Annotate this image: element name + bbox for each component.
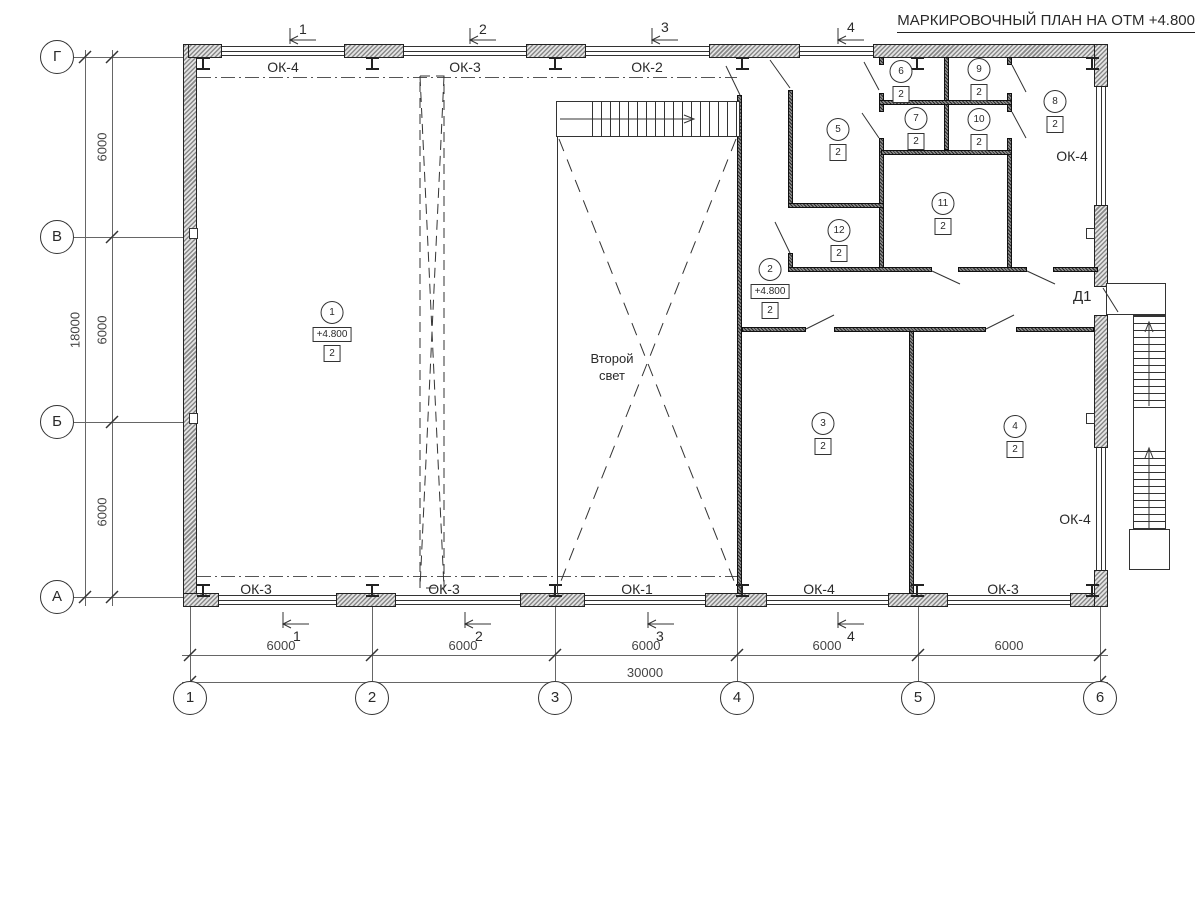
section-mark-label: 2: [475, 628, 483, 644]
dim-label-total: 30000: [627, 665, 663, 680]
axis-bubble-col: 6: [1083, 681, 1117, 715]
dimension-ticks: [79, 51, 1106, 688]
room-marker-6: 6 2: [890, 60, 913, 103]
room-number: 8: [1052, 96, 1058, 107]
room-number-bubble: 12: [828, 219, 851, 242]
axis-label: 5: [914, 689, 922, 706]
room-number: 3: [820, 418, 826, 429]
room-type-badge: 2: [815, 438, 832, 455]
room-type: 2: [940, 221, 946, 232]
room-type-badge: 2: [935, 218, 952, 235]
room-elevation: +4.800: [751, 284, 790, 299]
room-number: 2: [767, 264, 773, 275]
room-marker-9: 9 2: [968, 58, 991, 101]
window-label: ОК-3: [987, 581, 1019, 597]
room-number: 4: [1012, 421, 1018, 432]
room-marker-12: 12 2: [828, 219, 851, 262]
axis-label: Б: [52, 413, 62, 430]
axis-bubble-col: 5: [901, 681, 935, 715]
section-mark-label: 3: [656, 628, 664, 644]
room-marker-2: 2 +4.800 2: [751, 258, 790, 319]
room-type-badge: 2: [971, 134, 988, 151]
room-type-badge: 2: [893, 86, 910, 103]
dim-label: 6000: [813, 638, 842, 653]
window-label: ОК-2: [631, 59, 663, 75]
room-number-bubble: 1: [321, 301, 344, 324]
room-type: 2: [329, 348, 335, 359]
axis-bubble-col: 2: [355, 681, 389, 715]
room-number: 12: [833, 225, 844, 236]
room-type-badge: 2: [830, 144, 847, 161]
section-mark-label: 1: [293, 628, 301, 644]
axis-label: 1: [186, 689, 194, 706]
room-number: 9: [976, 64, 982, 75]
room-number-bubble: 11: [932, 192, 955, 215]
dim-label-total: 18000: [68, 312, 83, 348]
axis-bubble-row: Б: [40, 405, 74, 439]
room-number-bubble: 7: [905, 107, 928, 130]
axis-label: Г: [53, 48, 61, 65]
dim-label: 6000: [95, 498, 110, 527]
room-number: 1: [329, 307, 335, 318]
section-mark-label: 2: [479, 21, 487, 37]
section-mark-label: 4: [847, 19, 855, 35]
axis-label: 6: [1096, 689, 1104, 706]
room-type: 2: [836, 248, 842, 259]
axis-bubble-row: Г: [40, 40, 74, 74]
void-cross: [559, 139, 736, 586]
window-label: ОК-4: [803, 581, 835, 597]
section-mark-arrows: [283, 28, 864, 628]
dim-label: 6000: [95, 133, 110, 162]
room-type-badge: 2: [908, 133, 925, 150]
room-marker-1: 1 +4.800 2: [313, 301, 352, 362]
room-type: 2: [913, 136, 919, 147]
window-label: ОК-1: [621, 581, 653, 597]
room-number: 7: [913, 113, 919, 124]
room-marker-8: 8 2: [1044, 90, 1067, 133]
room-elevation: +4.800: [313, 327, 352, 342]
dim-label: 6000: [267, 638, 296, 653]
room-type: 2: [1052, 119, 1058, 130]
axis-label: 4: [733, 689, 741, 706]
axis-bubble-col: 4: [720, 681, 754, 715]
axis-bubble-row: А: [40, 580, 74, 614]
room-number: 10: [973, 114, 984, 125]
room-type-badge: 2: [1007, 441, 1024, 458]
axis-label: 2: [368, 689, 376, 706]
room-number: 11: [938, 198, 948, 209]
room-marker-7: 7 2: [905, 107, 928, 150]
room-marker-10: 10 2: [968, 108, 991, 151]
room-number: 6: [898, 66, 904, 77]
section-mark-label: 1: [299, 21, 307, 37]
room-number-bubble: 9: [968, 58, 991, 81]
room-marker-3: 3 2: [812, 412, 835, 455]
axis-bubble-col: 1: [173, 681, 207, 715]
room-type: 2: [898, 89, 904, 100]
room-marker-11: 11 2: [932, 192, 955, 235]
dim-label: 6000: [995, 638, 1024, 653]
room-type: 2: [1012, 444, 1018, 455]
room-number-bubble: 10: [968, 108, 991, 131]
room-number-bubble: 3: [812, 412, 835, 435]
room-marker-5: 5 2: [827, 118, 850, 161]
room-type: 2: [767, 305, 773, 316]
window-label: ОК-4: [267, 59, 299, 75]
window-label: ОК-3: [428, 581, 460, 597]
dim-label: 6000: [95, 316, 110, 345]
room-number-bubble: 4: [1004, 415, 1027, 438]
room-type: 2: [835, 147, 841, 158]
shaft-dashed-outline: [420, 76, 444, 588]
stair-direction-arrows: [560, 115, 1153, 528]
room-number: 5: [835, 124, 841, 135]
window-label: ОК-4: [1059, 511, 1091, 527]
door-label: Д1: [1073, 288, 1092, 305]
axis-bubble-row: В: [40, 220, 74, 254]
window-label: ОК-4: [1056, 148, 1088, 164]
room-type-badge: 2: [1047, 116, 1064, 133]
room-number-bubble: 6: [890, 60, 913, 83]
room-number-bubble: 5: [827, 118, 850, 141]
drawing-sheet: МАРКИРОВОЧНЫЙ ПЛАН НА ОТМ +4.800: [0, 0, 1200, 900]
section-mark-label: 4: [847, 628, 855, 644]
axis-bubble-col: 3: [538, 681, 572, 715]
axis-label: А: [52, 588, 62, 605]
dim-label: 6000: [449, 638, 478, 653]
axis-label: В: [52, 228, 62, 245]
room-type-badge: 2: [324, 345, 341, 362]
room-type-badge: 2: [971, 84, 988, 101]
room-number-bubble: 2: [759, 258, 782, 281]
room-type-badge: 2: [762, 302, 779, 319]
room-number-bubble: 8: [1044, 90, 1067, 113]
section-mark-label: 3: [661, 19, 669, 35]
room-type: 2: [820, 441, 826, 452]
window-label: ОК-3: [240, 581, 272, 597]
room-type: 2: [976, 137, 982, 148]
room-marker-4: 4 2: [1004, 415, 1027, 458]
room-type-badge: 2: [831, 245, 848, 262]
window-label: ОК-3: [449, 59, 481, 75]
room-type: 2: [976, 87, 982, 98]
axis-label: 3: [551, 689, 559, 706]
